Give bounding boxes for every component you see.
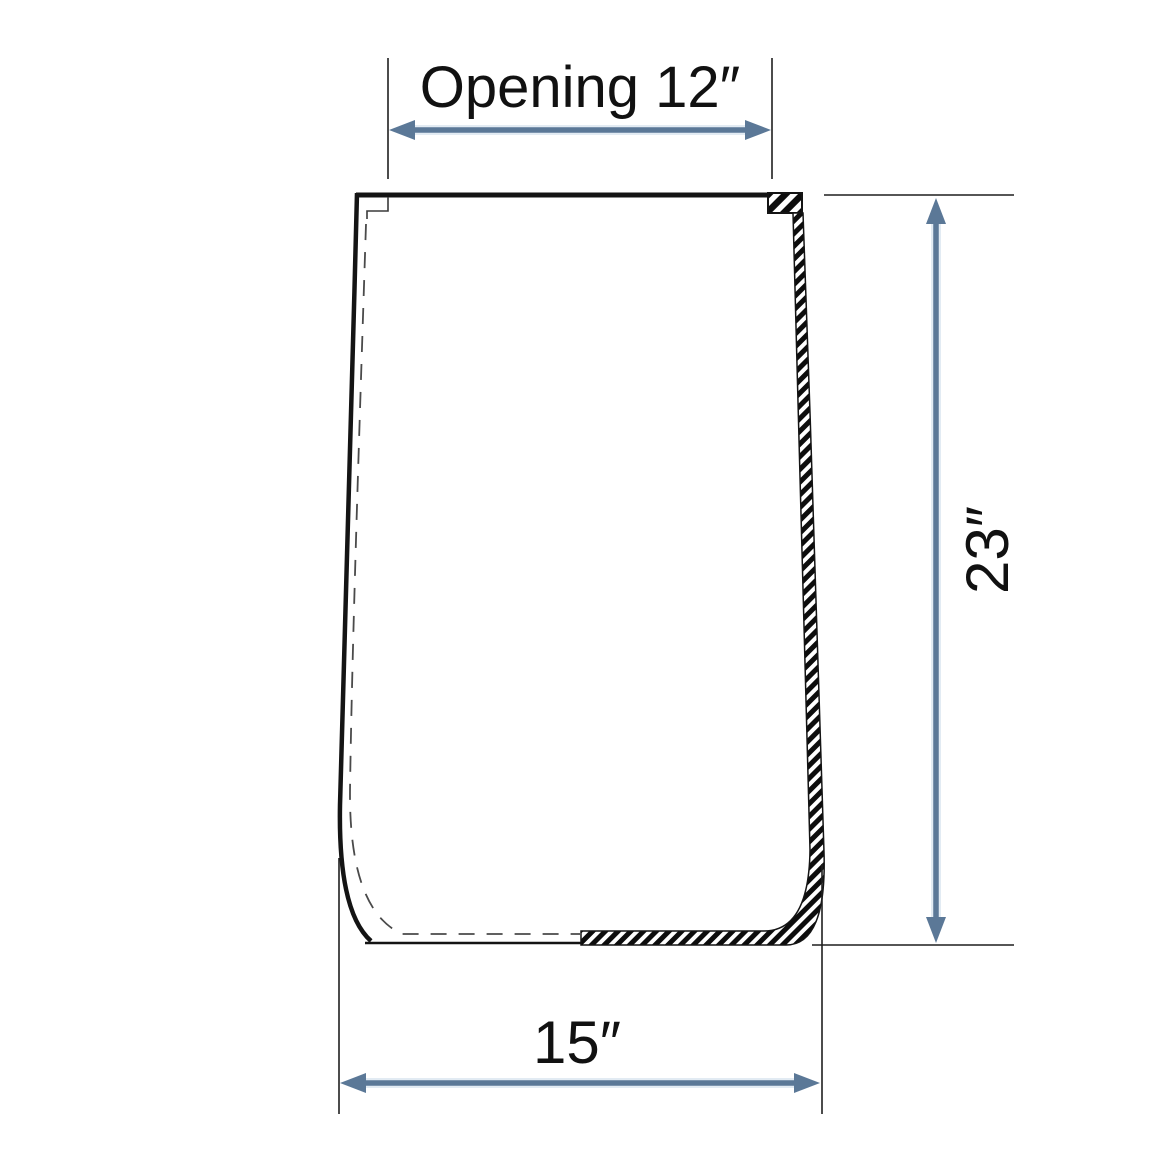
height-dimension-arrow	[926, 198, 946, 943]
rim-section-hatch	[768, 193, 802, 213]
inner-rim-step	[367, 197, 388, 219]
width-dimension-arrow	[340, 1073, 820, 1093]
wall-section-hatch	[581, 213, 824, 945]
height-arrowhead-bottom	[926, 917, 946, 943]
opening-dimension-label: Opening 12″	[420, 59, 740, 117]
opening-arrowhead-right	[745, 120, 771, 140]
width-arrowhead-right	[794, 1073, 820, 1093]
width-dimension-label: 15″	[533, 1013, 621, 1073]
height-arrowhead-top	[926, 198, 946, 224]
width-arrowhead-left	[340, 1073, 366, 1093]
vessel-outline	[340, 193, 824, 945]
extension-lines	[339, 58, 1014, 1114]
opening-arrowhead-left	[389, 120, 415, 140]
hidden-inner-wall-dashed	[350, 224, 580, 934]
vessel-dimension-diagram: Opening 12″ 23″ 15″	[0, 0, 1157, 1157]
opening-dimension-arrow	[389, 120, 771, 140]
height-dimension-label: 23″	[958, 506, 1018, 594]
